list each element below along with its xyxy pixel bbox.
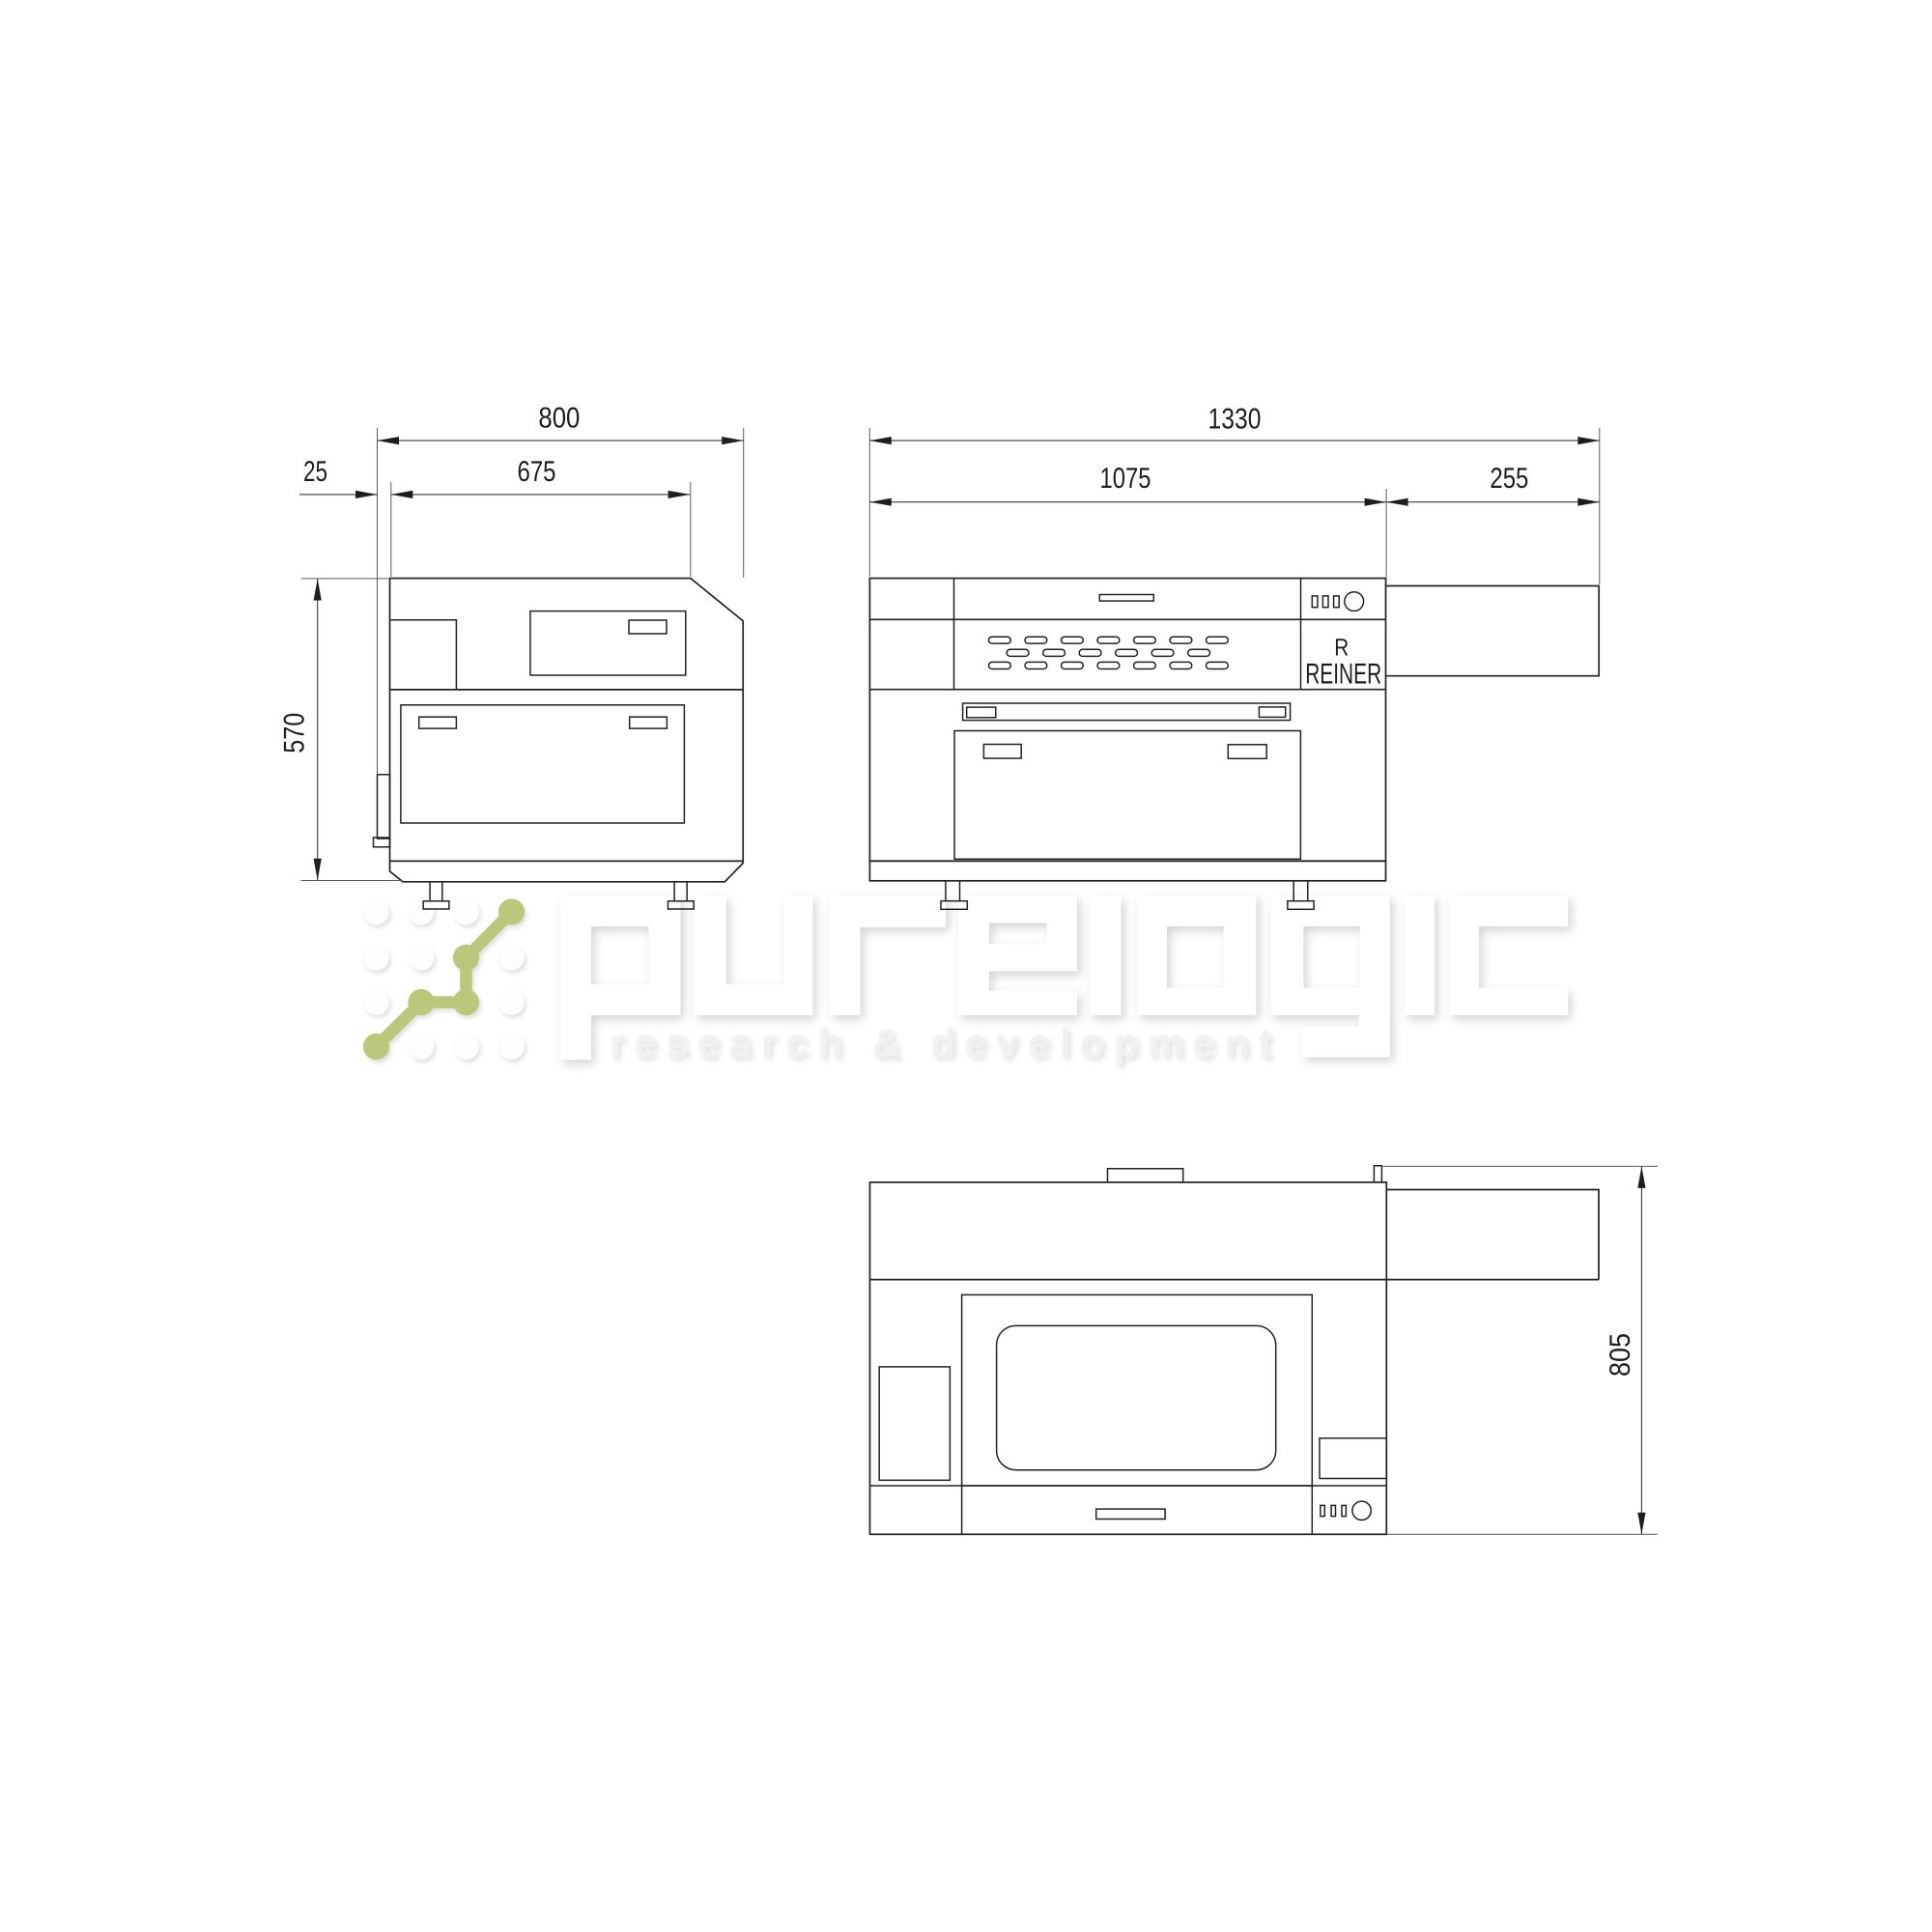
svg-text:1330: 1330 [1208,403,1262,435]
svg-text:570: 570 [279,713,311,753]
svg-text:REINER: REINER [1305,658,1381,690]
svg-text:research & development: research & development [610,1020,1272,1065]
svg-text:800: 800 [538,403,580,435]
svg-text:25: 25 [303,456,327,488]
svg-text:255: 255 [1490,463,1528,495]
svg-text:1075: 1075 [1100,463,1151,495]
svg-text:R: R [1334,634,1349,661]
svg-text:805: 805 [1605,1333,1636,1377]
svg-text:675: 675 [518,456,556,488]
